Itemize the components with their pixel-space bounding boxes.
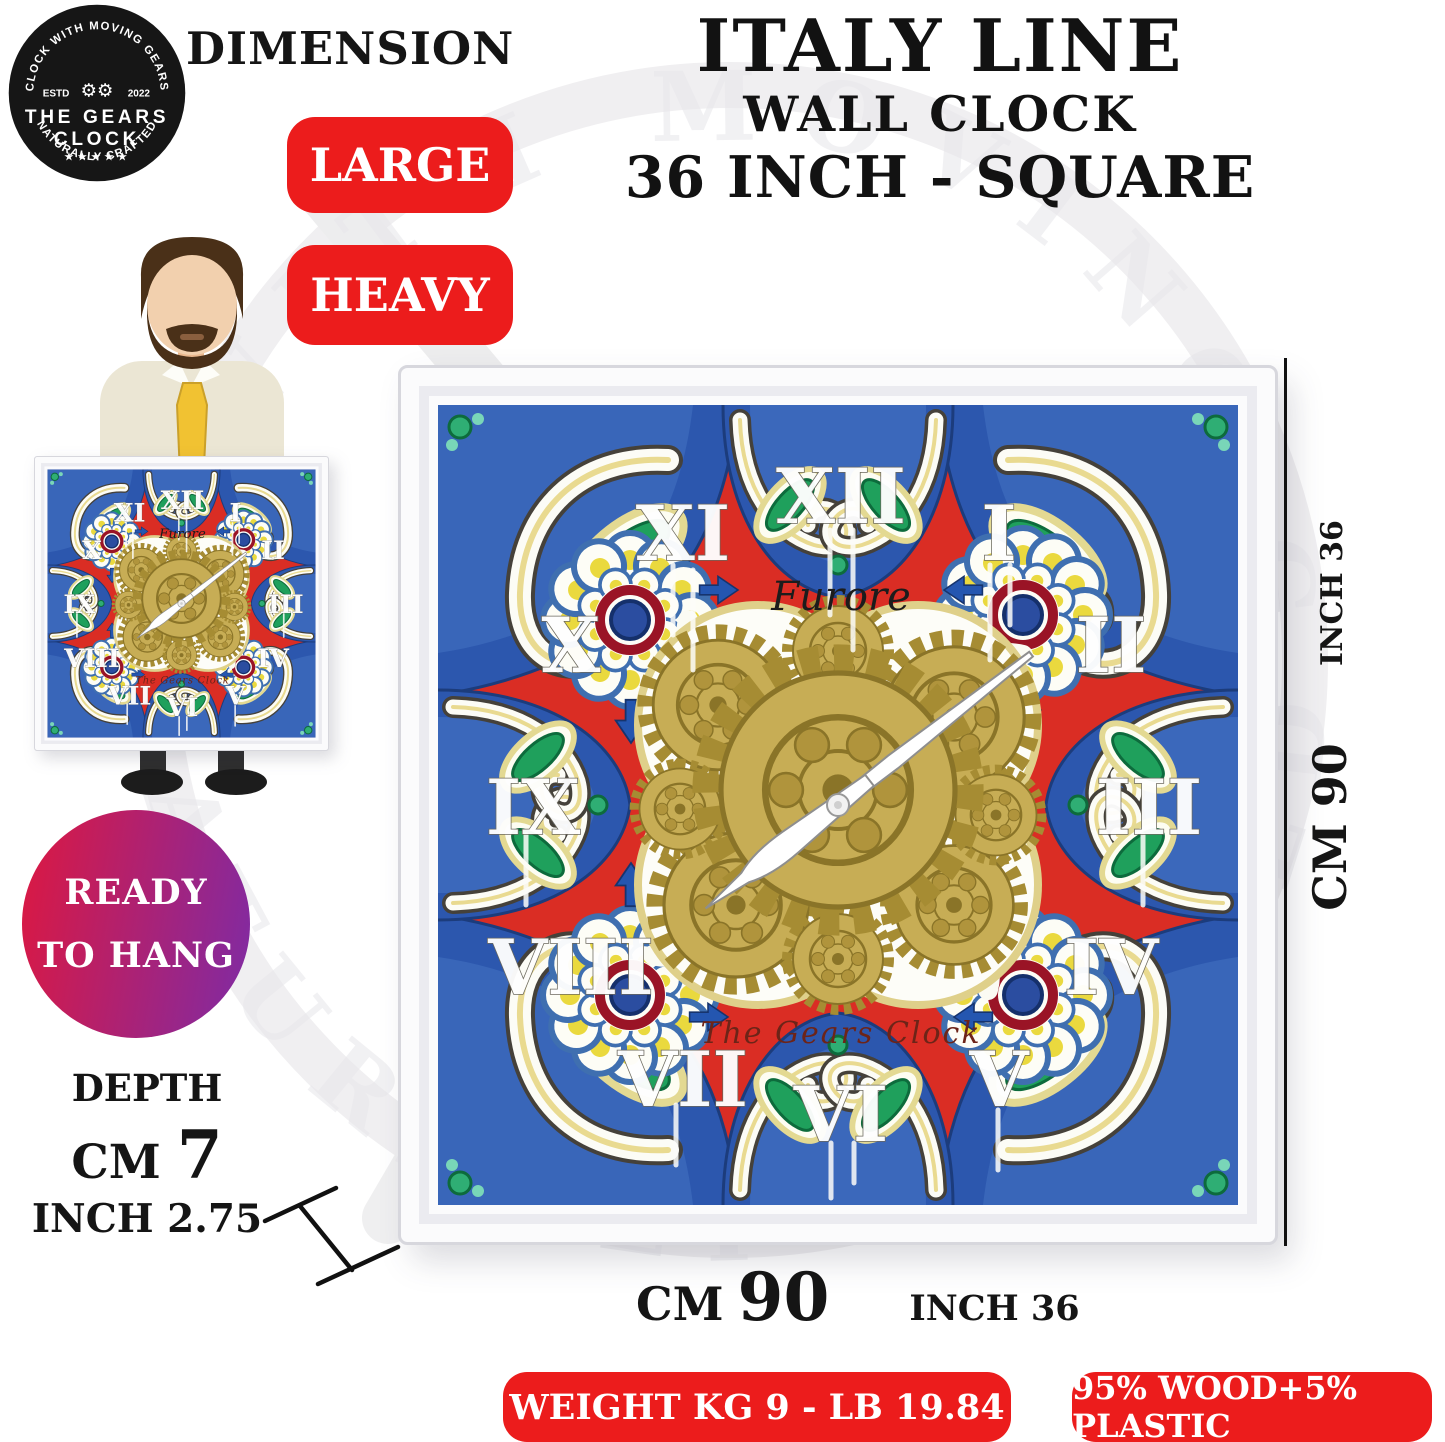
- depth-spec: DEPTH CM7 INCH 2.75: [30, 1066, 264, 1242]
- depth-dimension-mark: [250, 1175, 410, 1300]
- dimension-heading: DIMENSION: [186, 22, 514, 75]
- product-title-line3: 36 INCH - SQUARE: [600, 149, 1280, 206]
- man-mouth: [180, 334, 204, 340]
- depth-cm-unit: CM: [71, 1135, 160, 1190]
- depth-inch-row: INCH 2.75: [30, 1196, 264, 1242]
- side-inch-label: INCH 36: [1315, 518, 1351, 668]
- depth-label: DEPTH: [30, 1066, 264, 1110]
- logo-estd-text: ESTD: [43, 89, 70, 100]
- product-title-line2: WALL CLOCK: [600, 90, 1280, 139]
- badge-large: LARGE: [287, 117, 513, 213]
- brand-logo-badge: CLOCK WITH MOVING GEARS ESTD ⚙⚙ 2022 THE…: [6, 2, 188, 184]
- material-badge: 95% WOOD+5% PLASTIC: [1072, 1372, 1432, 1442]
- ready-badge-line2: TO HANG: [37, 935, 235, 976]
- ready-to-hang-badge: READY TO HANG: [22, 810, 250, 1038]
- product-infographic: XII I II III IV V VI VII VIII IX X XI Fu…: [0, 0, 1445, 1442]
- depth-inch-value: 2.75: [167, 1196, 262, 1242]
- logo-year-text: 2022: [128, 89, 151, 100]
- bottom-cm-unit: CM: [636, 1277, 724, 1331]
- man-shoe: [205, 769, 267, 795]
- bottom-inch-label: INCH 36: [909, 1288, 1079, 1329]
- height-dimension-line: [1284, 358, 1287, 1246]
- product-title: ITALY LINE WALL CLOCK 36 INCH - SQUARE: [600, 10, 1280, 206]
- bottom-cm-value: 90: [738, 1258, 830, 1336]
- clock-thumbnail: [34, 456, 329, 751]
- depth-cm-value: 7: [177, 1116, 223, 1194]
- gears-icon: ⚙⚙: [81, 81, 114, 102]
- bottom-width-dimension: CM 90 INCH 36: [636, 1258, 1080, 1336]
- depth-cm-row: CM7: [30, 1116, 264, 1194]
- badge-heavy: HEAVY: [287, 245, 513, 345]
- depth-inch-unit: INCH: [32, 1196, 154, 1242]
- product-title-line1: ITALY LINE: [600, 10, 1280, 82]
- weight-badge: WEIGHT KG 9 - LB 19.84: [503, 1372, 1011, 1442]
- man-shoe: [121, 769, 183, 795]
- ready-badge-line1: READY: [64, 872, 207, 913]
- wall-clock-product: [398, 365, 1278, 1245]
- side-cm-label: CM 90: [1306, 742, 1354, 912]
